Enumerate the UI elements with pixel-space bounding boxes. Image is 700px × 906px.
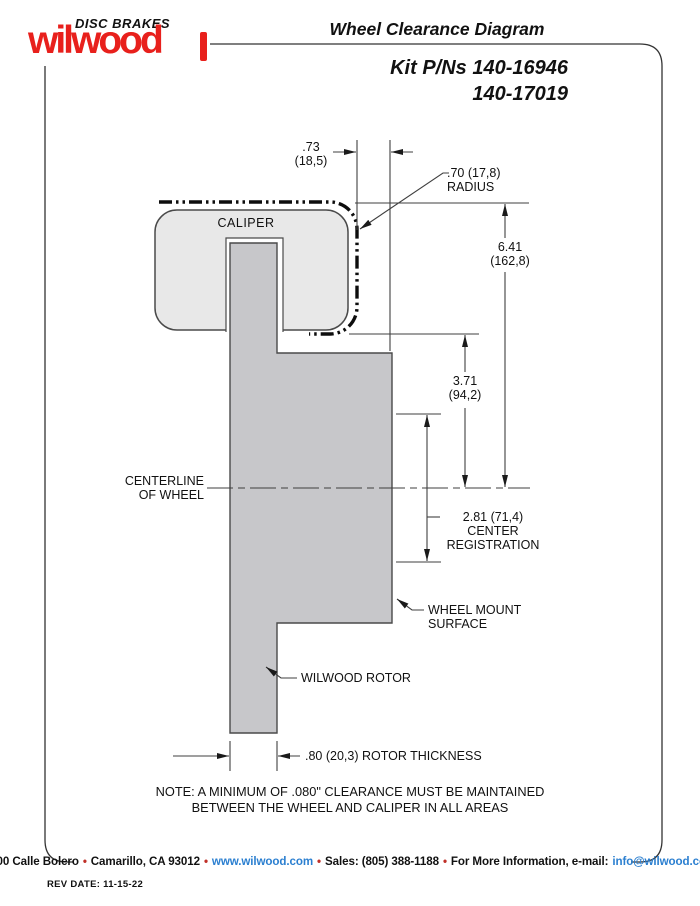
centerline-label: CENTERLINE OF WHEEL xyxy=(108,475,204,502)
wheel-clearance-diagram-page: DISC BRAKES wilwood Wheel Clearance Diag… xyxy=(0,0,700,906)
page-title: Wheel Clearance Diagram xyxy=(287,19,587,40)
dim-caliper-to-center-label: 3.71 (94,2) xyxy=(439,374,491,402)
kit-part-number-2: 140-17019 xyxy=(300,83,568,106)
bullet-separator: • xyxy=(204,855,208,868)
caliper-label: CALIPER xyxy=(209,216,283,230)
clearance-note: NOTE: A MINIMUM OF .080" CLEARANCE MUST … xyxy=(105,784,595,815)
wilwood-website-link[interactable]: www.wilwood.com xyxy=(212,855,313,868)
logo-bar xyxy=(200,32,207,61)
footer-contact-line: 4700 Calle Bolero • Camarillo, CA 93012 … xyxy=(45,855,655,868)
rotor-thickness-label: .80 (20,3) ROTOR THICKNESS xyxy=(305,749,482,763)
dim-caliper-offset-label: .73 (18,5) xyxy=(287,140,335,168)
bullet-separator: • xyxy=(317,855,321,868)
diagram-canvas xyxy=(0,0,700,906)
wilwood-rotor-label: WILWOOD ROTOR xyxy=(301,671,411,685)
bullet-separator: • xyxy=(443,855,447,868)
footer-city: Camarillo, CA 93012 xyxy=(91,855,200,868)
wilwood-logo: DISC BRAKES wilwood xyxy=(28,16,214,66)
footer-sales-phone: Sales: (805) 388-1188 xyxy=(325,855,439,868)
radius-label: .70 (17,8) RADIUS xyxy=(447,166,501,194)
logo-brand-text: wilwood xyxy=(28,21,161,61)
kit-part-number-1: Kit P/Ns 140-16946 xyxy=(300,57,568,80)
footer-more-info: For More Information, e-mail: xyxy=(451,855,609,868)
rev-date: REV DATE: 11-15-22 xyxy=(47,879,143,890)
rotor-thickness-lines xyxy=(173,741,300,771)
wheel-mount-surface-label: WHEEL MOUNT SURFACE xyxy=(428,603,521,631)
wheel-mount-leader xyxy=(397,599,424,610)
footer-address: 4700 Calle Bolero xyxy=(0,855,79,868)
radius-leader xyxy=(360,173,449,229)
wilwood-email-link[interactable]: info@wilwood.com xyxy=(612,855,700,868)
dim-overall-label: 6.41 (162,8) xyxy=(484,240,536,268)
center-registration-label: 2.81 (71,4) CENTER REGISTRATION xyxy=(443,510,543,552)
bullet-separator: • xyxy=(83,855,87,868)
